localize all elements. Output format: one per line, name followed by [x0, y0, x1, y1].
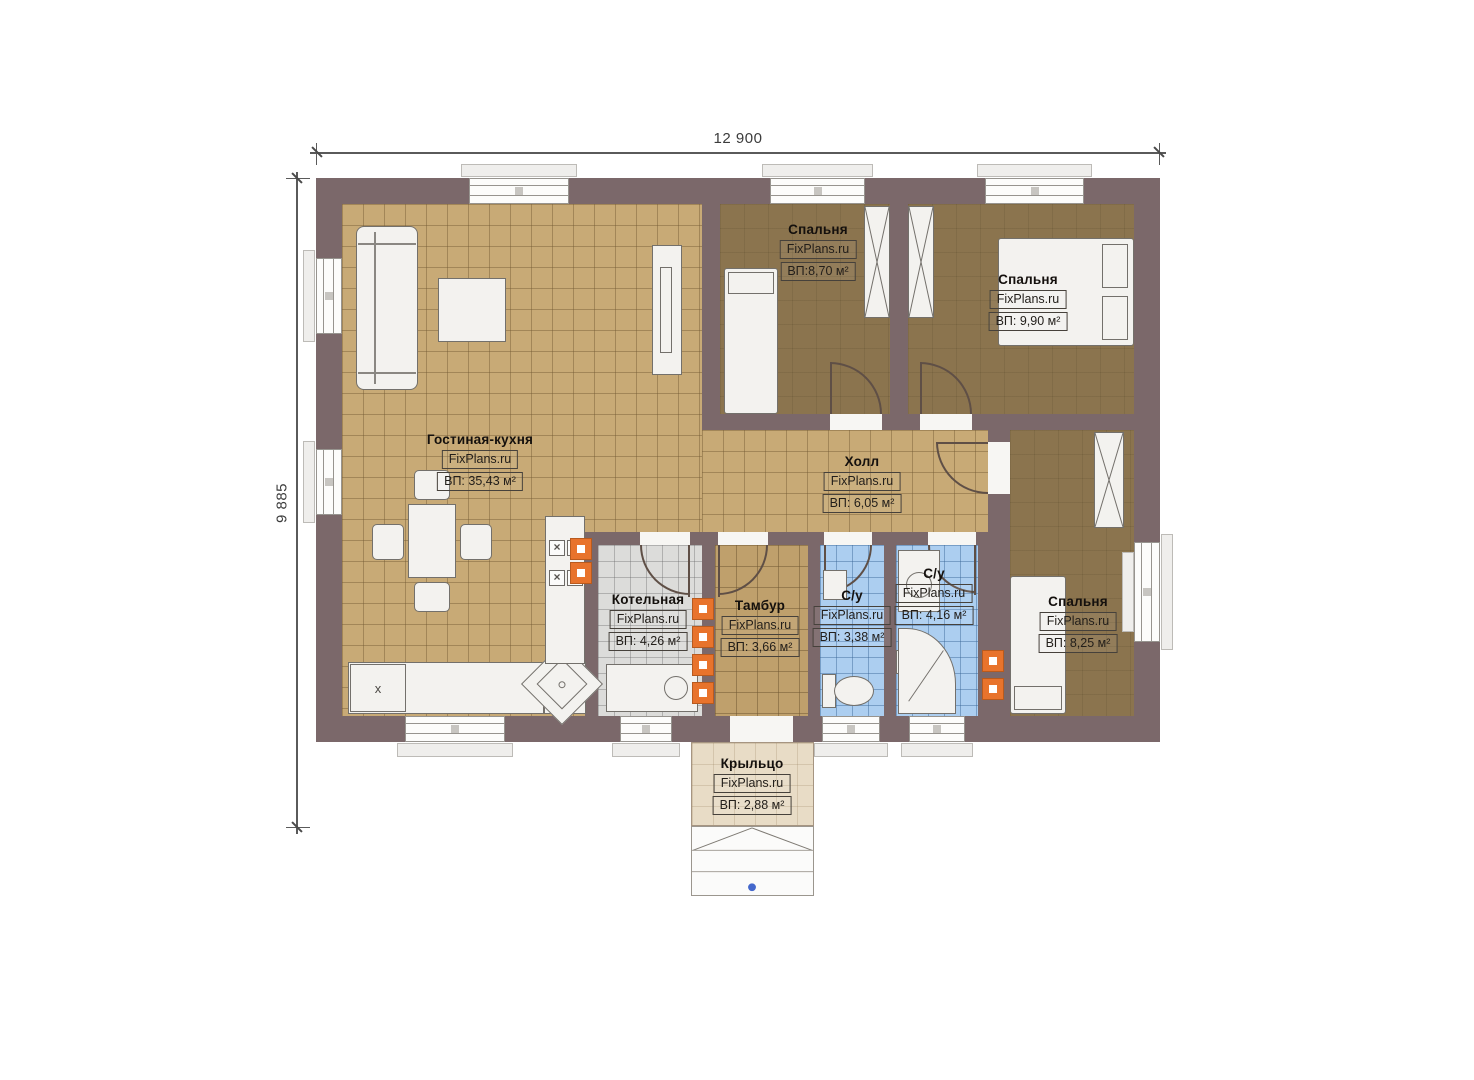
- stove-burner-icon: ×: [549, 570, 565, 586]
- wardrobe: [908, 206, 934, 318]
- room-brand: FixPlans.ru: [780, 240, 857, 259]
- room-brand: FixPlans.ru: [824, 472, 901, 491]
- window-living-left-2: [316, 449, 342, 515]
- room-label-vestibule: Тамбур FixPlans.ru ВП: 3,66 м²: [721, 598, 800, 657]
- dim-width-label: 12 900: [714, 130, 763, 147]
- door-opening-boiler: [640, 532, 690, 545]
- room-label-bedroom1: Спальня FixPlans.ru ВП:8,70 м²: [780, 222, 857, 281]
- room-brand: FixPlans.ru: [1040, 612, 1117, 631]
- coffee-table: [438, 278, 506, 342]
- room-name: С/у: [813, 588, 892, 603]
- window-bath1-bottom: [822, 716, 880, 742]
- room-brand: FixPlans.ru: [896, 584, 973, 603]
- room-label-bath1: С/у FixPlans.ru ВП: 3,38 м²: [813, 588, 892, 647]
- window-sill: [901, 743, 973, 757]
- sofa-armrest-line: [358, 372, 416, 374]
- room-name: Крыльцо: [713, 756, 792, 771]
- window-kitchen-bottom: [405, 716, 505, 742]
- door-opening-bath2: [928, 532, 976, 545]
- dim-line-left: [296, 172, 298, 834]
- window-bedroom3-right: [1134, 542, 1160, 642]
- vent-block-icon: [982, 678, 1004, 700]
- window-bath2-bottom: [909, 716, 965, 742]
- boiler-dial-icon: [664, 676, 688, 700]
- room-name: Спальня: [1039, 594, 1118, 609]
- tv: [660, 267, 672, 353]
- kitchen-appliance: x: [350, 664, 406, 712]
- stove-burner-icon: ×: [549, 540, 565, 556]
- wardrobe: [864, 206, 890, 318]
- window-living-top: [469, 178, 569, 204]
- chair: [460, 524, 492, 560]
- dining-table: [408, 504, 456, 578]
- room-area: ВП:8,70 м²: [780, 262, 855, 281]
- room-brand: FixPlans.ru: [722, 616, 799, 635]
- window-bedroom2-top: [985, 178, 1084, 204]
- vent-block-icon: [692, 598, 714, 620]
- door-opening-vestibule: [718, 532, 768, 545]
- room-area: ВП: 4,26 м²: [609, 632, 688, 651]
- porch-steps: [691, 826, 814, 896]
- room-name: Тамбур: [721, 598, 800, 613]
- room-label-living: Гостиная-кухня FixPlans.ru ВП: 35,43 м²: [427, 432, 533, 491]
- door-leaf: [974, 545, 976, 595]
- window-sill: [461, 164, 577, 177]
- window-sill: [814, 743, 888, 757]
- wall-right: [1134, 178, 1160, 742]
- vent-block-icon: [692, 682, 714, 704]
- room-label-bedroom3: Спальня FixPlans.ru ВП: 8,25 м²: [1039, 594, 1118, 653]
- room-area: ВП: 8,25 м²: [1039, 634, 1118, 653]
- room-label-bath2: С/у FixPlans.ru ВП: 4,16 м²: [895, 566, 974, 625]
- window-sill: [303, 250, 315, 342]
- window-bedroom1-top: [770, 178, 865, 204]
- room-name: Котельная: [609, 592, 688, 607]
- dim-height-label: 9 885: [274, 483, 291, 523]
- window-living-left-1: [316, 258, 342, 334]
- door-opening-entry: [730, 716, 793, 742]
- chair: [372, 524, 404, 560]
- vent-block-icon: [570, 562, 592, 584]
- window-inner-sill: [1122, 552, 1134, 632]
- floor-plan: 12 900 9 885: [0, 0, 1474, 1080]
- wall-hall-bedrooms: [702, 414, 1134, 430]
- door-opening-bedroom3: [988, 442, 1010, 494]
- room-brand: FixPlans.ru: [814, 606, 891, 625]
- room-area: ВП: 3,38 м²: [813, 628, 892, 647]
- room-label-boiler: Котельная FixPlans.ru ВП: 4,26 м²: [609, 592, 688, 651]
- room-name: Спальня: [780, 222, 857, 237]
- window-sill: [612, 743, 680, 757]
- toilet-bowl: [834, 676, 874, 706]
- door-opening-bedroom2: [920, 414, 972, 430]
- room-area: ВП: 2,88 м²: [713, 796, 792, 815]
- pillow: [1014, 686, 1062, 710]
- entry-marker-icon: [748, 883, 756, 891]
- vent-block-icon: [692, 626, 714, 648]
- room-brand: FixPlans.ru: [714, 774, 791, 793]
- pillow: [1102, 296, 1128, 340]
- window-sill: [977, 164, 1092, 177]
- chair: [414, 582, 450, 612]
- room-label-hall: Холл FixPlans.ru ВП: 6,05 м²: [823, 454, 902, 513]
- room-name: Холл: [823, 454, 902, 469]
- door-leaf: [936, 442, 988, 444]
- shower-tray: [898, 628, 956, 714]
- pillow: [1102, 244, 1128, 288]
- room-area: ВП: 3,66 м²: [721, 638, 800, 657]
- window-boiler-bottom: [620, 716, 672, 742]
- sofa-back-line: [374, 232, 376, 384]
- room-name: С/у: [895, 566, 974, 581]
- door-opening-bedroom1: [830, 414, 882, 430]
- room-area: ВП: 9,90 м²: [989, 312, 1068, 331]
- room-brand: FixPlans.ru: [610, 610, 687, 629]
- vent-block-icon: [692, 654, 714, 676]
- steps-lines-icon: [692, 827, 813, 895]
- dim-line-top: [310, 152, 1166, 154]
- wall-bedroom-divider: [890, 204, 908, 414]
- room-area: ВП: 35,43 м²: [437, 472, 523, 491]
- room-label-porch: Крыльцо FixPlans.ru ВП: 2,88 м²: [713, 756, 792, 815]
- door-leaf: [920, 362, 922, 414]
- sofa: [356, 226, 418, 390]
- window-sill: [762, 164, 873, 177]
- vent-block-icon: [570, 538, 592, 560]
- room-brand: FixPlans.ru: [990, 290, 1067, 309]
- vent-block-icon: [982, 650, 1004, 672]
- door-leaf: [830, 362, 832, 414]
- room-area: ВП: 4,16 м²: [895, 606, 974, 625]
- pillow: [728, 272, 774, 294]
- window-sill: [303, 441, 315, 523]
- room-brand: FixPlans.ru: [442, 450, 519, 469]
- door-leaf: [688, 545, 690, 597]
- door-leaf: [718, 545, 720, 597]
- room-name: Спальня: [989, 272, 1068, 287]
- window-sill: [397, 743, 513, 757]
- window-sill: [1161, 534, 1173, 650]
- room-area: ВП: 6,05 м²: [823, 494, 902, 513]
- door-opening-bath1: [824, 532, 872, 545]
- room-name: Гостиная-кухня: [427, 432, 533, 447]
- room-label-bedroom2: Спальня FixPlans.ru ВП: 9,90 м²: [989, 272, 1068, 331]
- wardrobe: [1094, 432, 1124, 528]
- wall-living-bedroom1: [702, 204, 720, 430]
- sofa-armrest-line: [358, 243, 416, 245]
